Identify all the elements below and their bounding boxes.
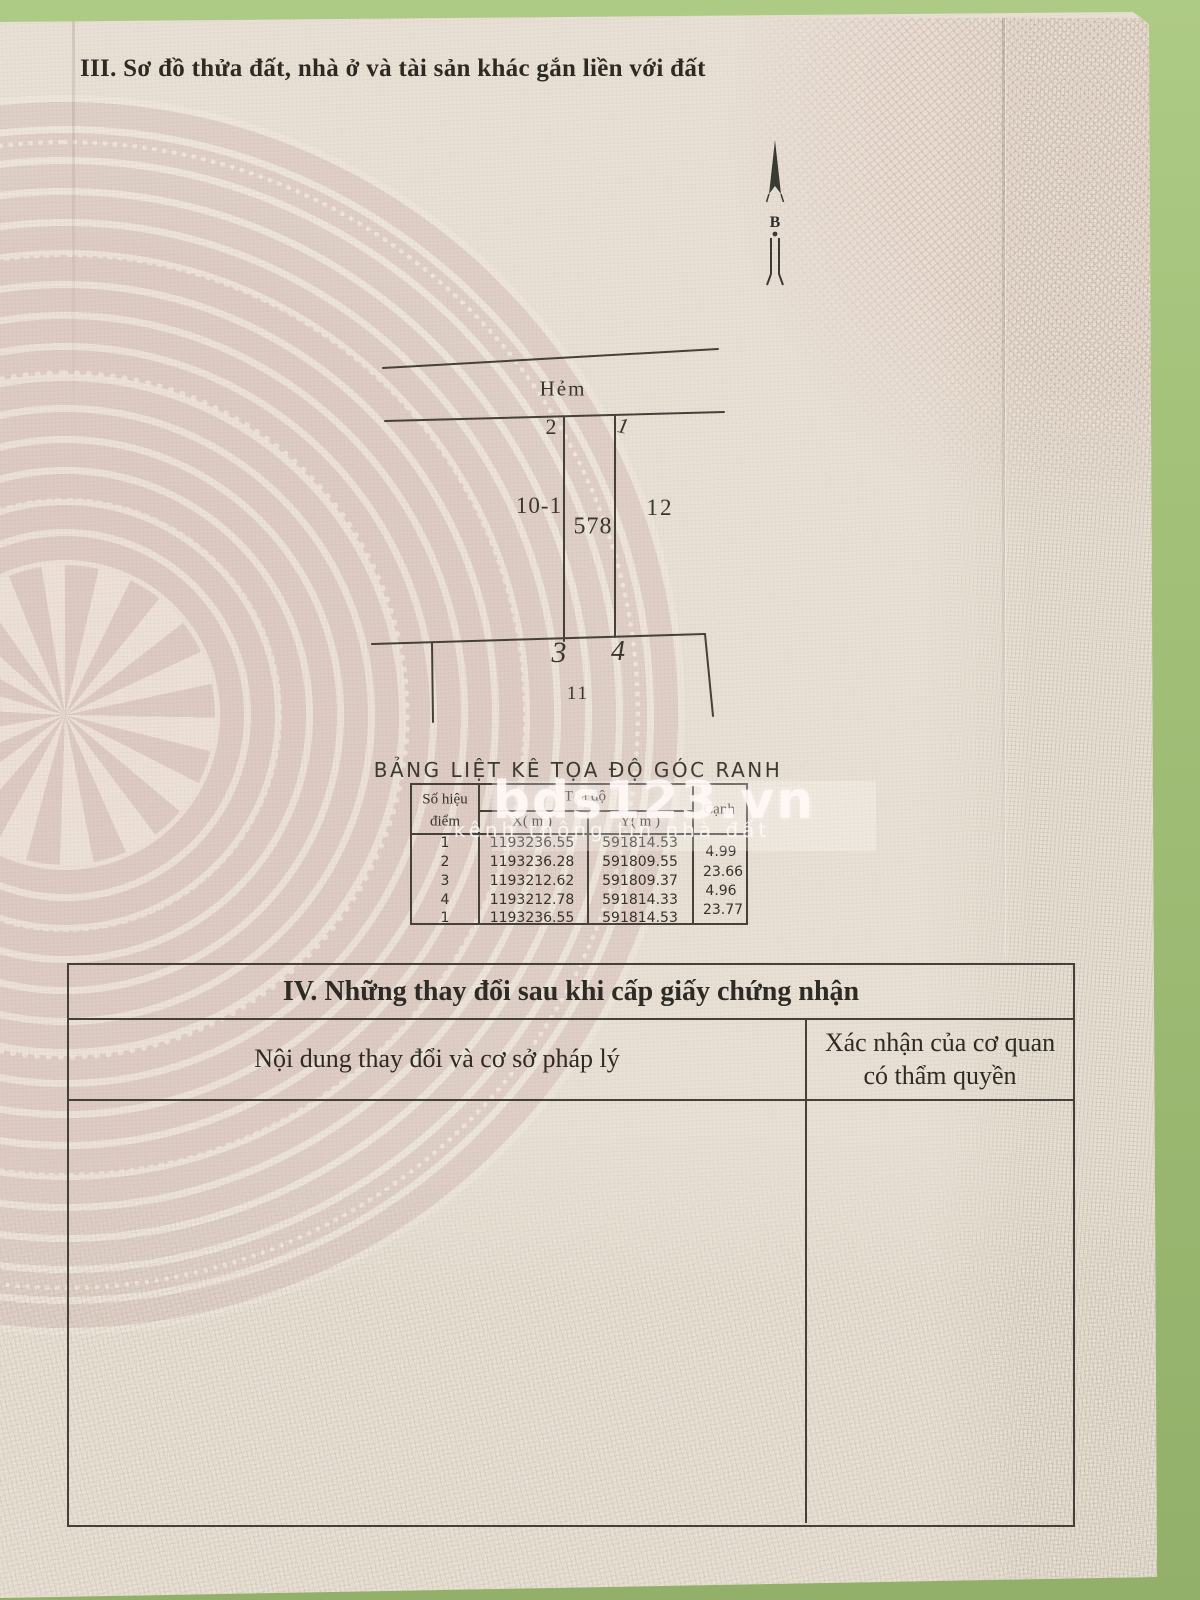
column-header-confirmation: Xác nhận của cơ quan có thẩm quyền bbox=[807, 1020, 1073, 1101]
drum-star-center bbox=[0, 565, 215, 865]
neighbor-parcel-12-label: 12 bbox=[647, 495, 674, 521]
parcel-number-label: 578 bbox=[574, 514, 613, 541]
x-cell: 1193212.78 bbox=[490, 892, 575, 908]
watermark-tagline: kênh thông tin nhà đất bbox=[454, 818, 771, 842]
column-header-content-text: Nội dung thay đổi và cơ sở pháp lý bbox=[254, 1043, 619, 1076]
column-content-changes: Nội dung thay đổi và cơ sở pháp lý bbox=[69, 1020, 807, 1523]
section-iii-title: III. Sơ đồ thửa đất, nhà ở và tài sản kh… bbox=[80, 55, 706, 83]
fold-crease-left bbox=[72, 18, 75, 448]
guilloche-texture-topright bbox=[640, 18, 1155, 638]
y-cell: 591809.37 bbox=[602, 873, 678, 889]
point-cell: 1 bbox=[441, 835, 450, 851]
corner-point-4-label: 4 bbox=[611, 636, 625, 668]
neighbor-parcel-11-label: 11 bbox=[567, 683, 589, 705]
drum-ring bbox=[0, 495, 285, 935]
column-header-confirmation-line1: Xác nhận của cơ quan bbox=[825, 1027, 1055, 1060]
col-header-point-number: Số hiệu bbox=[422, 792, 467, 809]
content-changes-empty-cell bbox=[69, 1101, 805, 1523]
drum-ring bbox=[0, 370, 410, 1060]
scanned-certificate-page: III. Sơ đồ thửa đất, nhà ở và tài sản kh… bbox=[0, 0, 1200, 1600]
corner-point-2-label: 2 bbox=[546, 414, 557, 440]
corner-point-3-label: 3 bbox=[552, 636, 567, 670]
y-cell: 591814.33 bbox=[602, 892, 678, 908]
x-cell: 1193212.62 bbox=[490, 873, 575, 889]
edge-length-cell: 23.66 bbox=[703, 864, 743, 880]
column-authority-confirmation: Xác nhận của cơ quan có thẩm quyền bbox=[807, 1020, 1073, 1523]
table-grid-line bbox=[478, 785, 480, 923]
y-cell: 591809.55 bbox=[602, 854, 678, 870]
section-iv-title: IV. Những thay đổi sau khi cấp giấy chứn… bbox=[69, 965, 1073, 1020]
column-header-confirmation-line2: có thẩm quyền bbox=[863, 1060, 1016, 1093]
edge-length-cell: 23.77 bbox=[703, 902, 743, 918]
point-cell: 4 bbox=[441, 892, 450, 908]
point-cell: 2 bbox=[441, 854, 450, 870]
alley-label: Hẻm bbox=[540, 377, 587, 402]
authority-confirmation-empty-cell bbox=[807, 1101, 1073, 1523]
column-header-content: Nội dung thay đổi và cơ sở pháp lý bbox=[69, 1020, 805, 1101]
x-cell: 1193236.28 bbox=[490, 854, 575, 870]
section-iv-table: IV. Những thay đổi sau khi cấp giấy chứn… bbox=[67, 963, 1075, 1527]
point-cell: 1 bbox=[441, 910, 450, 926]
edge-length-cell: 4.96 bbox=[705, 883, 736, 899]
point-cell: 3 bbox=[441, 873, 450, 889]
neighbor-parcel-10-1-label: 10-1 bbox=[516, 493, 562, 519]
fold-crease-right bbox=[1002, 18, 1005, 958]
x-cell: 1193236.55 bbox=[490, 910, 575, 926]
y-cell: 591814.53 bbox=[602, 910, 678, 926]
